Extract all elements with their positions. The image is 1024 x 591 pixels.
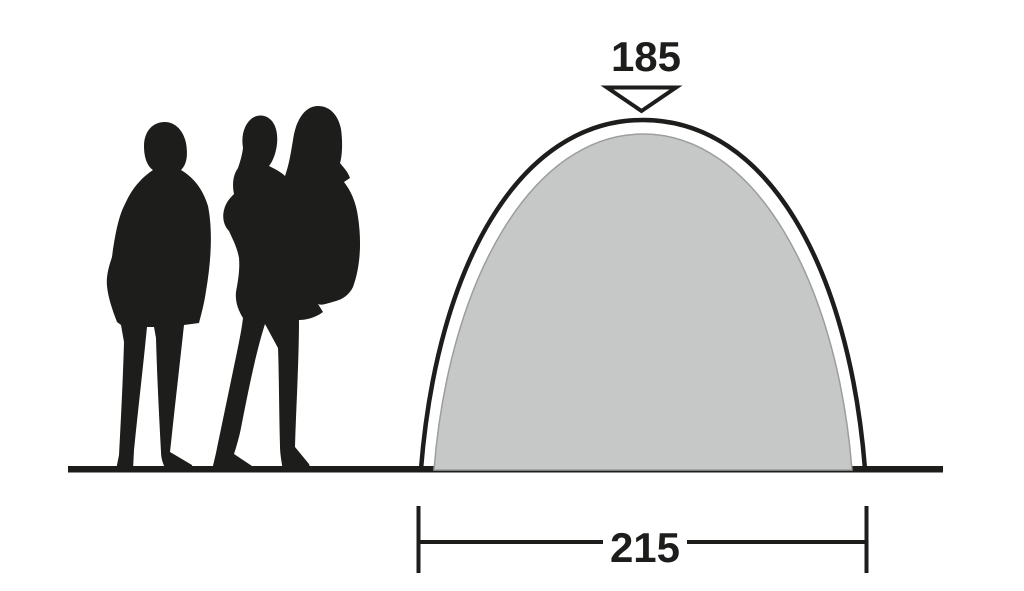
- tent-cross-section: [421, 120, 865, 470]
- tent-size-diagram: 185 215: [0, 0, 1024, 591]
- diagram-canvas: [0, 0, 1024, 591]
- height-marker-triangle-down-icon: [607, 88, 676, 112]
- people-silhouettes-icon: [107, 106, 360, 470]
- dimension-tick-left: [417, 506, 421, 573]
- woman-silhouette-icon: [107, 122, 211, 470]
- tent-height-label: 185: [536, 36, 756, 78]
- tent-inner-fill: [434, 134, 852, 470]
- adult-with-child-silhouette-icon: [212, 106, 360, 470]
- tent-width-label: 215: [603, 527, 687, 569]
- dimension-tick-right: [865, 506, 869, 573]
- tent-width-label-wrap: 215: [535, 527, 755, 569]
